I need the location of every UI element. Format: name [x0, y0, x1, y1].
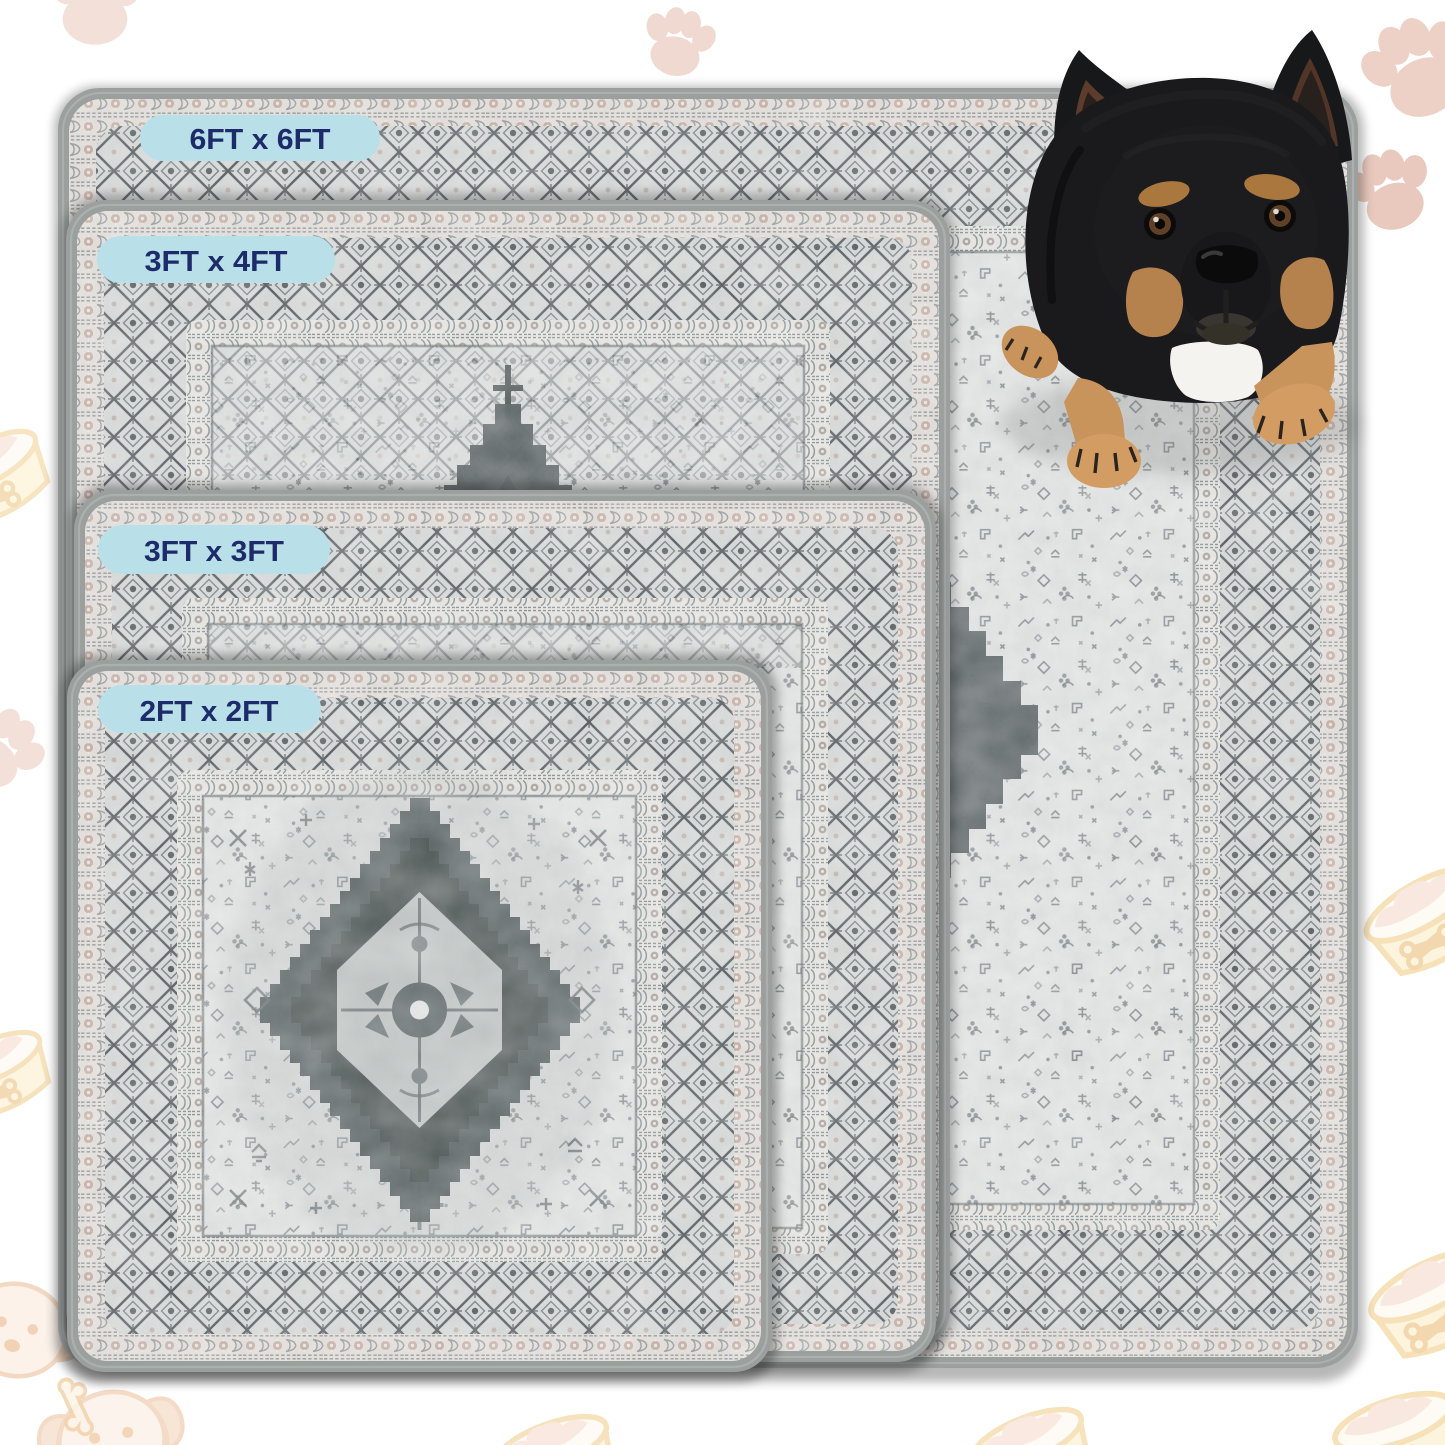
svg-text:3FT x 4FT: 3FT x 4FT — [145, 246, 289, 278]
svg-text:3FT x 3FT: 3FT x 3FT — [144, 536, 285, 568]
svg-text:2FT x 2FT: 2FT x 2FT — [140, 696, 280, 728]
svg-text:6FT x 6FT: 6FT x 6FT — [190, 124, 332, 156]
